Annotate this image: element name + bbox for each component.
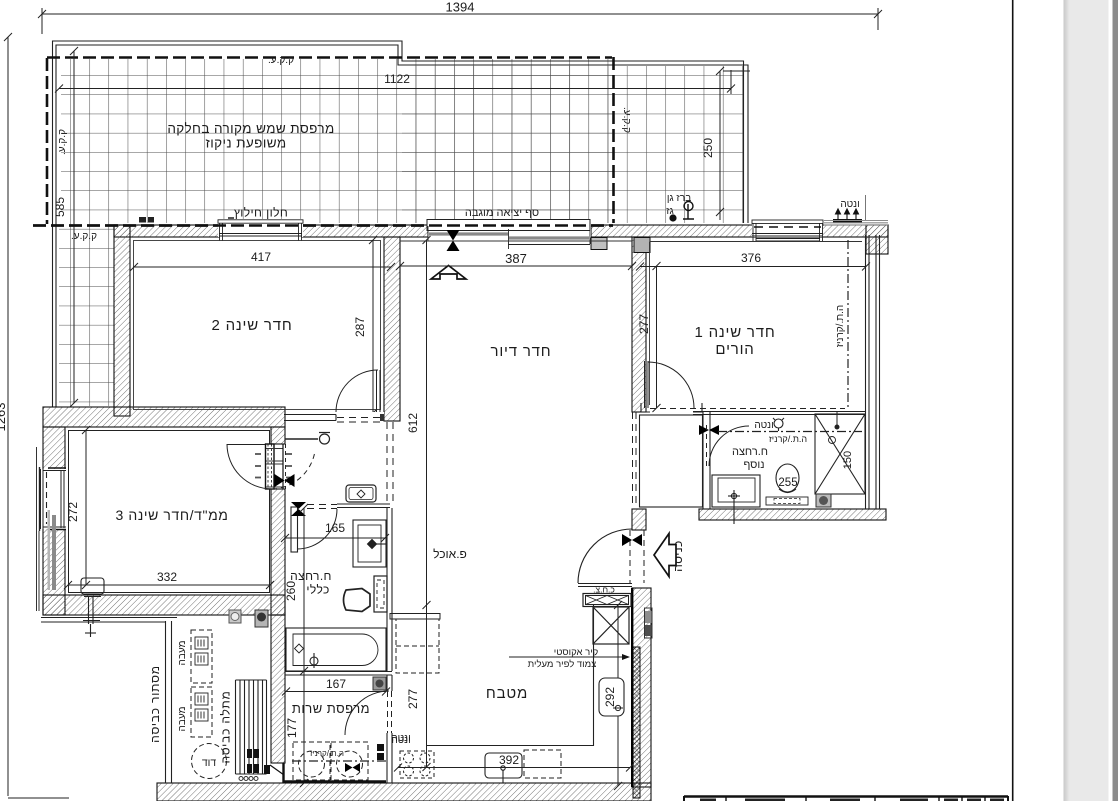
svg-text:ונטה: ונטה	[754, 420, 773, 431]
svg-text:.ק.ק.ע: .ק.ק.ע	[268, 55, 294, 66]
svg-text:כללי: כללי	[306, 583, 329, 597]
svg-text:ונטה: ונטה	[840, 199, 859, 210]
svg-text:1263: 1263	[0, 403, 8, 432]
svg-text:255: 255	[778, 477, 797, 489]
svg-text:חלון חילוץ: חלון חילוץ	[234, 206, 288, 220]
svg-text:387: 387	[505, 251, 527, 266]
svg-text:ממ"ד/חדר שינה 3: ממ"ד/חדר שינה 3	[115, 507, 228, 523]
svg-text:סף יציאה מוגבה: סף יציאה מוגבה	[465, 207, 539, 219]
svg-text:167: 167	[326, 677, 346, 691]
svg-text:משופעת ניקוז: משופעת ניקוז	[205, 136, 286, 151]
svg-text:ונטה: ונטה	[391, 733, 410, 744]
svg-text:מטבח: מטבח	[486, 685, 528, 702]
svg-text:מתלה כביסה: מתלה כביסה	[219, 690, 233, 763]
svg-text:250: 250	[701, 138, 715, 158]
svg-text:ברז גן: ברז גן	[667, 193, 691, 204]
svg-text:ח.רחצה: ח.רחצה	[732, 446, 768, 458]
svg-text:332: 332	[157, 570, 177, 584]
svg-text:277: 277	[637, 314, 651, 334]
svg-text:.ק.ק.ע: .ק.ק.ע	[57, 129, 68, 155]
svg-text:מעבה: מעבה	[177, 706, 188, 731]
svg-text:ה.ת./קרניז: ה.ת./קרניז	[769, 434, 807, 444]
svg-text:צמוד לפיר מעלית: צמוד לפיר מעלית	[528, 658, 597, 670]
svg-text:260: 260	[284, 581, 298, 601]
svg-text:חדר שינה 1: חדר שינה 1	[694, 324, 775, 341]
svg-text:פ.אוכל: פ.אוכל	[433, 547, 467, 561]
svg-text:.ק.ק.ע: .ק.ק.ע	[71, 231, 97, 242]
svg-text:דוד: דוד	[202, 757, 217, 769]
svg-text:נוסף: נוסף	[743, 459, 764, 471]
svg-text:165: 165	[325, 521, 345, 535]
svg-text:277: 277	[406, 689, 420, 709]
svg-text:287: 287	[353, 317, 367, 337]
svg-text:392: 392	[499, 753, 519, 767]
svg-text:292: 292	[603, 687, 617, 707]
svg-text:ה.ת./קרניז: ה.ת./קרניז	[310, 749, 344, 758]
svg-text:177: 177	[285, 718, 299, 738]
svg-text:376: 376	[741, 251, 761, 265]
svg-text:מסתור כביסה: מסתור כביסה	[148, 665, 162, 743]
svg-text:חדר דיור: חדר דיור	[491, 343, 552, 360]
svg-text:272: 272	[66, 502, 80, 522]
svg-text:585: 585	[53, 197, 67, 217]
svg-text:חדר שינה 2: חדר שינה 2	[211, 317, 292, 334]
svg-text:ח.רחצה: ח.רחצה	[290, 569, 332, 583]
svg-text:הורים: הורים	[715, 341, 754, 358]
svg-text:417: 417	[251, 250, 271, 264]
svg-text:612: 612	[406, 413, 420, 433]
svg-text:ה.ת./קרניז: ה.ת./קרניז	[835, 305, 846, 348]
svg-text:150: 150	[842, 451, 854, 469]
svg-text:מרפסת שמש מקורה בחלקה: מרפסת שמש מקורה בחלקה	[167, 121, 334, 136]
svg-text:קיר אקוסטי: קיר אקוסטי	[554, 647, 599, 658]
svg-text:1394: 1394	[446, 0, 475, 15]
svg-text:מעבה: מעבה	[177, 640, 188, 665]
svg-text:.ק.ק.ע: .ק.ק.ע	[621, 107, 632, 133]
svg-text:1122: 1122	[384, 72, 410, 86]
